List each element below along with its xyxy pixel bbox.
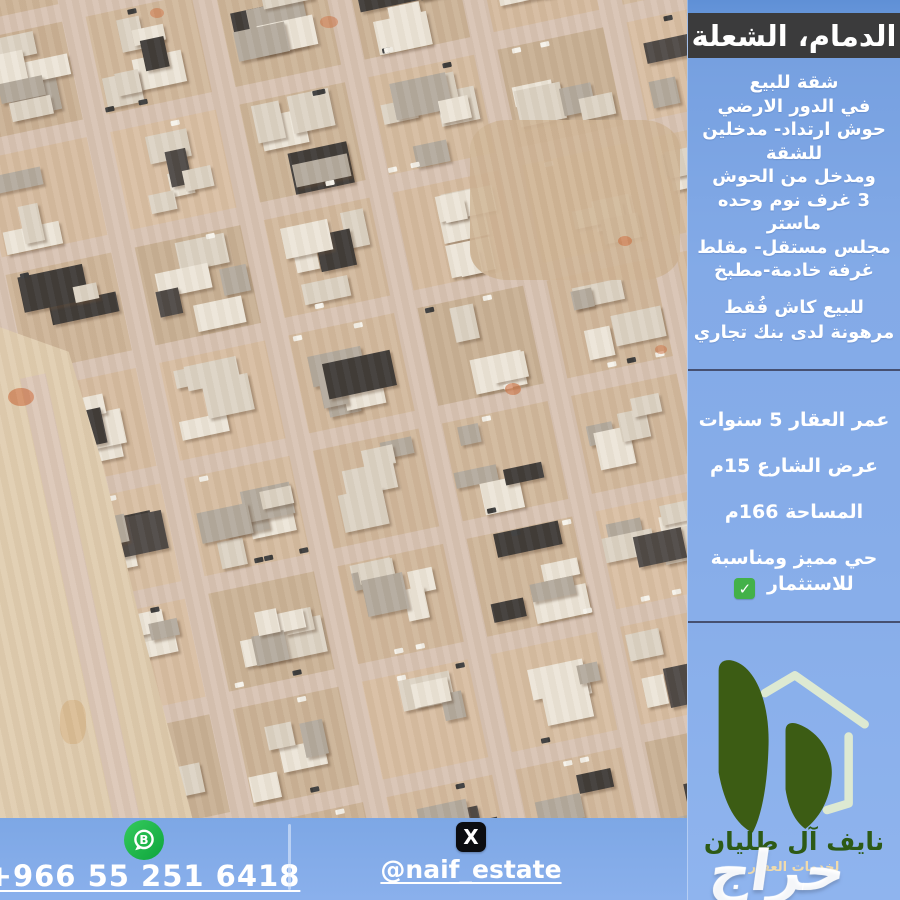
sale-terms-line: للبيع كاش فُقط: [688, 295, 900, 320]
sale-terms-line: مرهونة لدى بنك تجاري: [688, 320, 900, 345]
page-title: الدمام، الشعلة: [692, 19, 897, 53]
spec-area: المساحة 166م: [688, 499, 900, 525]
spec-age: عمر العقار 5 سنوات: [688, 407, 900, 433]
map-texture-overlay: [0, 0, 687, 818]
house-leaves-icon: [695, 631, 893, 843]
contact-divider: [288, 824, 291, 890]
description-line: غرفة خادمة-مطبخ: [688, 259, 900, 283]
description-line: في الدور الارضي: [688, 95, 900, 119]
x-icon[interactable]: X: [456, 822, 486, 852]
real-estate-flyer: الدمام، الشعلة شقة للبيع في الدور الارضي…: [0, 0, 900, 900]
contact-bar: B +966 55 251 6418 X @naif_estate: [0, 818, 687, 900]
satellite-map-image: [0, 0, 687, 818]
description-line: شقة للبيع: [688, 71, 900, 95]
section-divider: [688, 621, 900, 623]
brand-logo: [688, 631, 900, 847]
investment-line: حي مميز ومناسبة: [688, 545, 900, 571]
brand-name: نايف آل طليان: [688, 827, 900, 857]
sale-terms: للبيع كاش فُقط مرهونة لدى بنك تجاري: [688, 295, 900, 345]
x-contact[interactable]: X @naif_estate: [318, 822, 624, 884]
whatsapp-contact[interactable]: B +966 55 251 6418: [6, 819, 282, 893]
phone-number[interactable]: +966 55 251 6418: [0, 859, 300, 893]
listing-sidebar: الدمام، الشعلة شقة للبيع في الدور الارضي…: [687, 0, 900, 900]
x-handle[interactable]: @naif_estate: [380, 855, 561, 884]
whatsapp-business-icon[interactable]: B: [123, 819, 165, 861]
property-specs: عمر العقار 5 سنوات عرض الشارع 15م المساح…: [688, 407, 900, 525]
description-line: حوش ارتداد- مدخلين للشقة: [688, 118, 900, 165]
description-line: ومدخل من الحوش: [688, 165, 900, 189]
section-divider: [688, 369, 900, 371]
description-line: 3 غرف نوم وحده ماستر: [688, 189, 900, 236]
investment-line: للاستثمار ✓: [688, 571, 900, 600]
svg-text:B: B: [139, 833, 148, 847]
location-header: الدمام، الشعلة: [688, 13, 900, 58]
check-icon: ✓: [734, 578, 755, 599]
spec-street-width: عرض الشارع 15م: [688, 453, 900, 479]
brand-tagline: لخدمات العقار: [688, 860, 900, 875]
description-line: مجلس مستقل- مقلط: [688, 236, 900, 260]
property-description: شقة للبيع في الدور الارضي حوش ارتداد- مد…: [688, 58, 900, 283]
investment-note: حي مميز ومناسبة للاستثمار ✓: [688, 545, 900, 600]
